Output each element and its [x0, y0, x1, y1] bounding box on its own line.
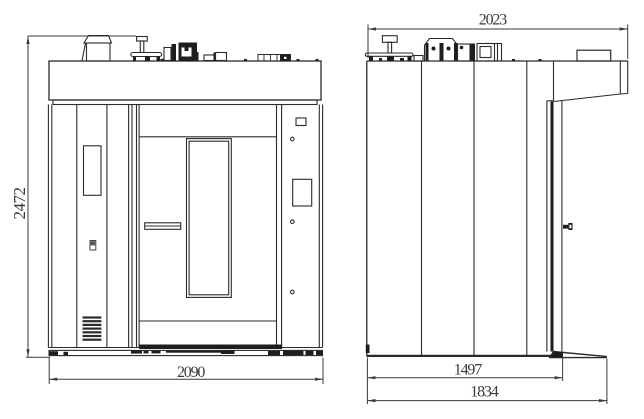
- svg-text:2023: 2023: [479, 12, 507, 29]
- svg-text:2472: 2472: [10, 188, 29, 220]
- svg-text:2090: 2090: [177, 364, 205, 381]
- svg-text:1834: 1834: [470, 384, 498, 401]
- svg-text:1497: 1497: [454, 362, 482, 379]
